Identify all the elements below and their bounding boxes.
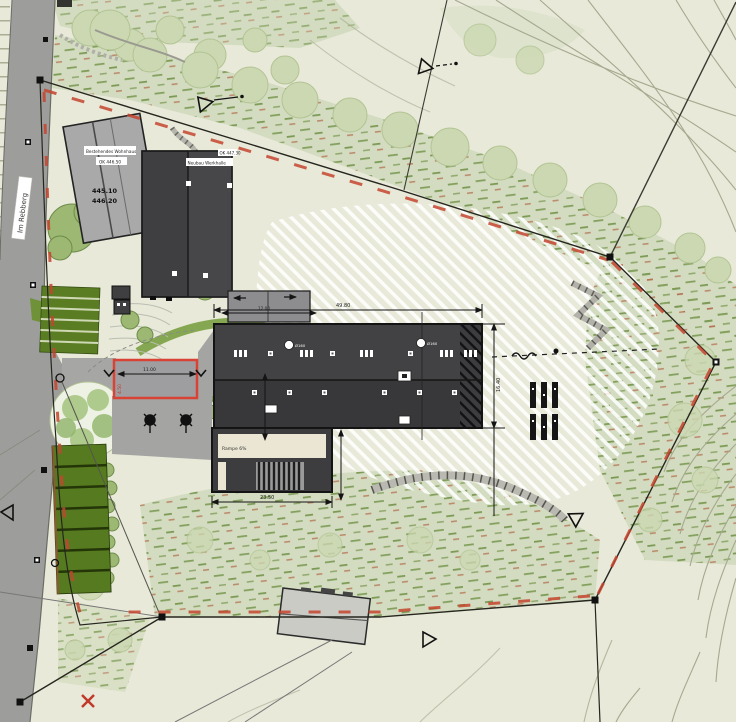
existing-building-label-2: OK 446.50 bbox=[99, 160, 121, 165]
existing-building-elev-1: 445.10 bbox=[92, 187, 118, 195]
road-top-mark bbox=[57, 0, 72, 7]
building-annex: 12.00 bbox=[222, 291, 316, 322]
building-ramp: Rampe 6% bbox=[212, 428, 332, 492]
highlighted-red-area: 4.50 bbox=[104, 360, 206, 398]
vent-label-2: Ø160 bbox=[427, 341, 438, 346]
existing-building-elev-2: 446.20 bbox=[92, 197, 118, 205]
entry-structures bbox=[112, 286, 130, 314]
dim-ramp-width: 23.50 bbox=[260, 495, 274, 501]
site-plan: Im Rebberg bbox=[0, 0, 736, 722]
dim-forecourt: 11.00 bbox=[143, 367, 156, 373]
building-main-hall: Ø160 Ø160 bbox=[214, 312, 482, 440]
vent-label-1: Ø160 bbox=[295, 343, 306, 348]
ramp-label: Rampe 6% bbox=[222, 446, 247, 452]
dim-main-width: 49.80 bbox=[336, 303, 350, 309]
site-plan-drawing: Im Rebberg bbox=[0, 0, 736, 722]
new-building-label-2: OK 447.30 bbox=[220, 151, 241, 156]
building-new-upper: OK 447.30 Neubau Werkhalle bbox=[142, 149, 241, 301]
existing-building-label-1: Bestehendes Wohnhaus bbox=[86, 149, 136, 154]
red-area-dimension: 4.50 bbox=[117, 384, 123, 394]
new-building-label-1: Neubau Werkhalle bbox=[188, 161, 227, 166]
dim-main-depth: 16.40 bbox=[496, 378, 502, 392]
ramp-grating bbox=[256, 462, 304, 490]
